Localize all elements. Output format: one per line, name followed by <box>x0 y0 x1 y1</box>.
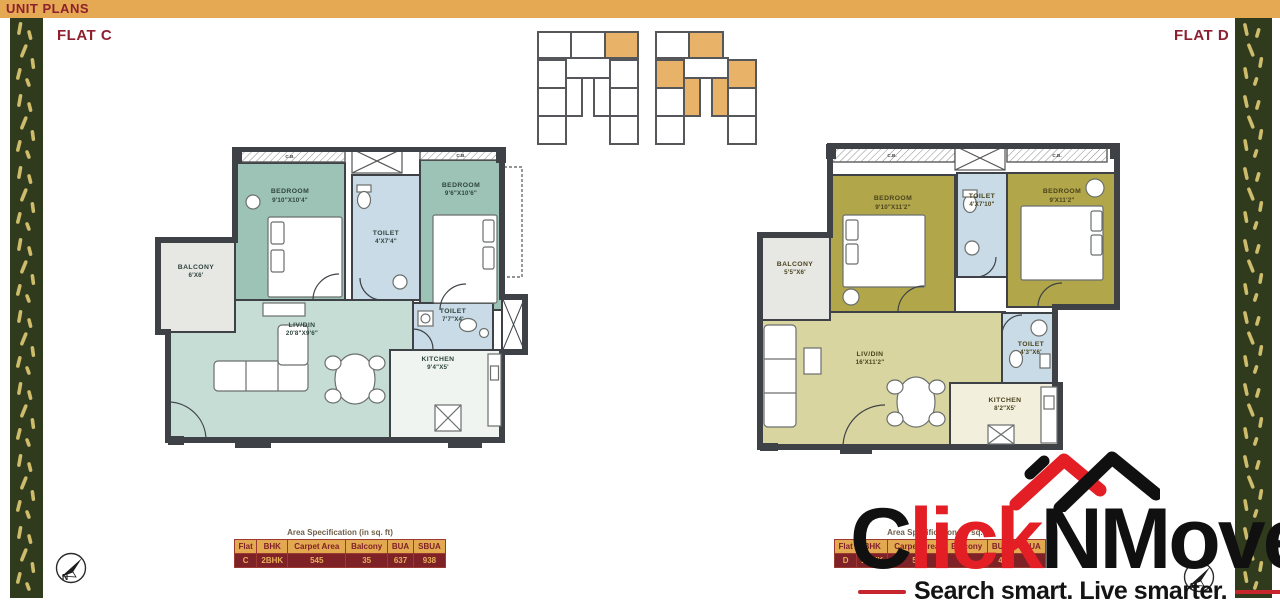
room-label: LIV/DIN <box>857 351 884 358</box>
logo-part-lick: lick <box>909 491 1040 587</box>
page-title: UNIT PLANS <box>6 1 89 16</box>
room-dims: 9'4"X5' <box>427 364 449 371</box>
tagline-text: Search smart. Live smarter. <box>914 577 1227 606</box>
col-flat: Flat <box>235 540 257 554</box>
north-compass-icon: N <box>54 551 88 585</box>
room-dims: 7'7"X4' <box>442 316 464 323</box>
room-dims: 4'3"X6' <box>1020 349 1042 356</box>
room-label: BEDROOM <box>442 182 480 189</box>
col-bua: BUA <box>388 540 414 554</box>
tagline-dash-left <box>858 590 906 594</box>
col-balcony: Balcony <box>346 540 388 554</box>
room-label: KITCHEN <box>988 397 1021 404</box>
balcony-room <box>158 240 235 332</box>
cell-bua: 637 <box>388 554 414 568</box>
toilet-1-room <box>957 173 1007 277</box>
room-label: TOILET <box>373 230 400 237</box>
cell-bhk: 2BHK <box>257 554 288 568</box>
cell-flat: C <box>235 554 257 568</box>
room-dims: 9'6"X10'6" <box>445 190 477 197</box>
room-dims: 5'5"X6' <box>784 269 806 276</box>
room-label: KITCHEN <box>421 356 454 363</box>
logo-wordmark: ClickNMove <box>850 496 1280 582</box>
room-label: TOILET <box>969 193 996 200</box>
col-carpet: Carpet Area <box>288 540 346 554</box>
flat-d-label: FLAT D <box>1174 27 1229 44</box>
closet-label: C.B. <box>285 154 294 159</box>
flat-d-floorplan: C.B. C.B. <box>748 140 1128 460</box>
building-keyplan-flat-d <box>652 28 760 148</box>
closet-label: C.B. <box>1052 153 1061 158</box>
highlighted-unit <box>689 32 723 58</box>
highlighted-unit <box>605 32 638 58</box>
closet-label: C.B. <box>456 153 465 158</box>
ledge-dashed <box>504 167 522 277</box>
entry-step <box>840 445 872 454</box>
cell-carpet: 545 <box>288 554 346 568</box>
logo-part-c: C <box>850 491 909 587</box>
room-dims: 6'X6' <box>189 272 204 279</box>
room-dims: 4'X7'4" <box>375 238 397 245</box>
cell-balcony: 35 <box>346 554 388 568</box>
room-label: LIV/DIN <box>289 322 316 329</box>
room-label: BEDROOM <box>271 188 309 195</box>
room-label: BEDROOM <box>1043 188 1081 195</box>
unit-plans-page: UNIT PLANS <box>0 0 1280 615</box>
logo-part-nmove: NMove <box>1041 491 1280 587</box>
room-label: BALCONY <box>777 261 813 268</box>
room-dims: 8'2"X5' <box>994 405 1016 412</box>
logo-tagline: Search smart. Live smarter. <box>858 577 1280 606</box>
cell-sbua: 938 <box>413 554 445 568</box>
page-title-bar: UNIT PLANS <box>0 0 1280 18</box>
table-title: Area Specification (in sq. ft) <box>234 528 446 537</box>
table-row: C 2BHK 545 35 637 938 <box>235 554 446 568</box>
building-keyplan-flat-c <box>534 28 642 148</box>
left-border-decoration <box>10 18 43 598</box>
room-label: BALCONY <box>178 264 214 271</box>
balcony-room <box>760 235 830 320</box>
room-dims: 20'8"X9'6" <box>286 330 318 337</box>
flat-c-area-table: Area Specification (in sq. ft) Flat BHK … <box>234 528 446 568</box>
flat-c-floorplan: C.B. C.B. <box>150 147 530 462</box>
room-dims: 16'X11'2" <box>856 359 885 366</box>
compass-n-label: N <box>62 572 68 582</box>
flat-c-label: FLAT C <box>57 27 112 44</box>
room-label: TOILET <box>440 308 467 315</box>
col-sbua: SBUA <box>413 540 445 554</box>
room-dims: 9'10"X11'2" <box>875 204 910 211</box>
entry-step <box>235 439 271 448</box>
closet-label: C.B. <box>887 153 896 158</box>
room-label: BEDROOM <box>874 195 912 202</box>
tagline-dash-right <box>1235 590 1280 594</box>
room-dims: 9'10"X10'4" <box>272 197 308 204</box>
room-dims: 4'X7'10" <box>969 201 994 208</box>
col-bhk: BHK <box>257 540 288 554</box>
room-label: TOILET <box>1018 341 1045 348</box>
bed-icon <box>433 215 497 303</box>
room-dims: 9'X11'2" <box>1049 197 1074 204</box>
